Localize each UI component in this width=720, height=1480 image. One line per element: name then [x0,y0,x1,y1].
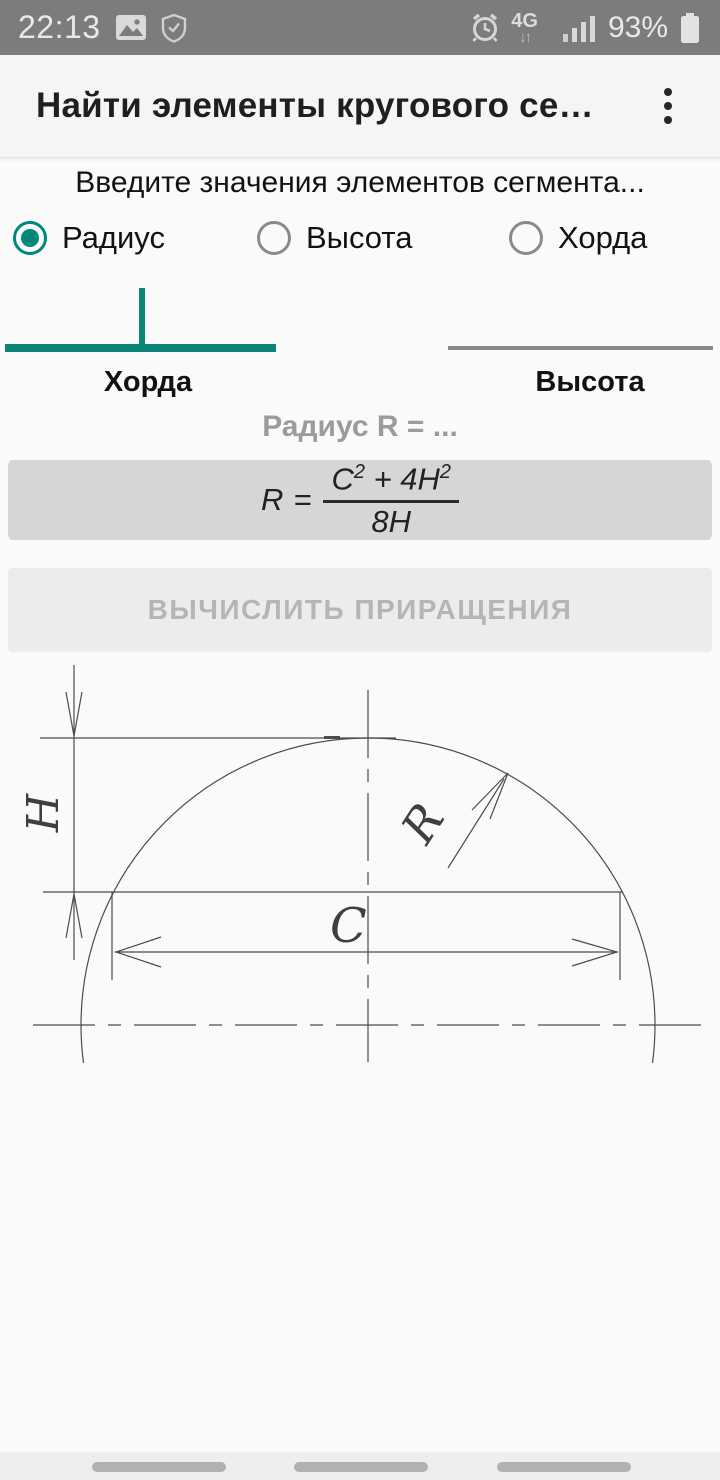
radio-height[interactable]: Высота [257,212,412,264]
formula-h: H [418,462,440,497]
radio-height-circle[interactable] [257,221,291,255]
chord-input-label: Хорда [60,366,236,399]
network-type-indicator: 4G ↓↑ [511,11,538,45]
image-notification-icon [115,14,147,41]
formula-card: R = C2 + 4H2 8H [8,460,712,540]
formula-denominator: 8H [363,503,419,539]
radius-formula: R = C2 + 4H2 8H [261,461,459,539]
shield-check-icon [161,13,187,43]
radio-chord[interactable]: Хорда [509,212,647,264]
segment-diagram: H R C [0,650,720,1070]
battery-icon [680,12,700,44]
alarm-icon [469,12,501,44]
radio-height-label: Высота [306,220,412,256]
calculate-button[interactable]: ВЫЧИСЛИТЬ ПРИРАЩЕНИЯ [8,568,712,652]
formula-operator: + 4 [365,462,418,497]
signal-bars-icon [562,13,598,43]
instruction-text: Введите значения элементов сегмента... [0,166,720,200]
radio-radius[interactable]: Радиус [13,212,165,264]
segment-element-radio-group: Радиус Высота Хорда [0,212,720,264]
formula-h-exp: 2 [440,461,451,483]
formula-fraction: C2 + 4H2 8H [323,461,459,539]
overflow-menu-button[interactable] [640,55,696,157]
formula-numerator: C2 + 4H2 [323,461,459,502]
nav-hint-recents[interactable] [92,1462,226,1472]
battery-percent-text: 93% [608,11,668,45]
formula-c-exp: 2 [354,461,365,483]
height-input[interactable] [448,346,713,350]
radio-radius-circle[interactable] [13,221,47,255]
text-cursor [139,288,145,344]
status-bar: 22:13 4G ↓↑ [0,0,720,55]
radio-chord-label: Хорда [558,220,647,256]
radius-arrow-icon [472,773,508,819]
radio-chord-circle[interactable] [509,221,543,255]
formula-c: C [331,462,353,497]
height-input-label: Высота [500,366,680,399]
result-caption: Радиус R = ... [0,410,720,444]
nav-hint-back[interactable] [497,1462,631,1472]
nav-hint-home[interactable] [294,1462,428,1472]
chord-dimension-label: C [330,898,367,954]
app-header: Найти элементы кругового се… [0,55,720,158]
clock-text: 22:13 [18,9,101,46]
network-type-text: 4G [511,11,538,31]
radio-radius-label: Радиус [62,220,165,256]
gesture-navigation-bar [0,1452,720,1480]
formula-lhs: R [261,482,283,518]
radius-leader-line [448,779,504,868]
formula-equals: = [293,482,311,518]
network-arrows-icon: ↓↑ [519,30,530,45]
height-dimension-label: H [18,792,69,833]
chord-input[interactable] [5,344,276,352]
page-title: Найти элементы кругового се… [36,55,594,157]
radius-dimension-label: R [390,794,455,853]
